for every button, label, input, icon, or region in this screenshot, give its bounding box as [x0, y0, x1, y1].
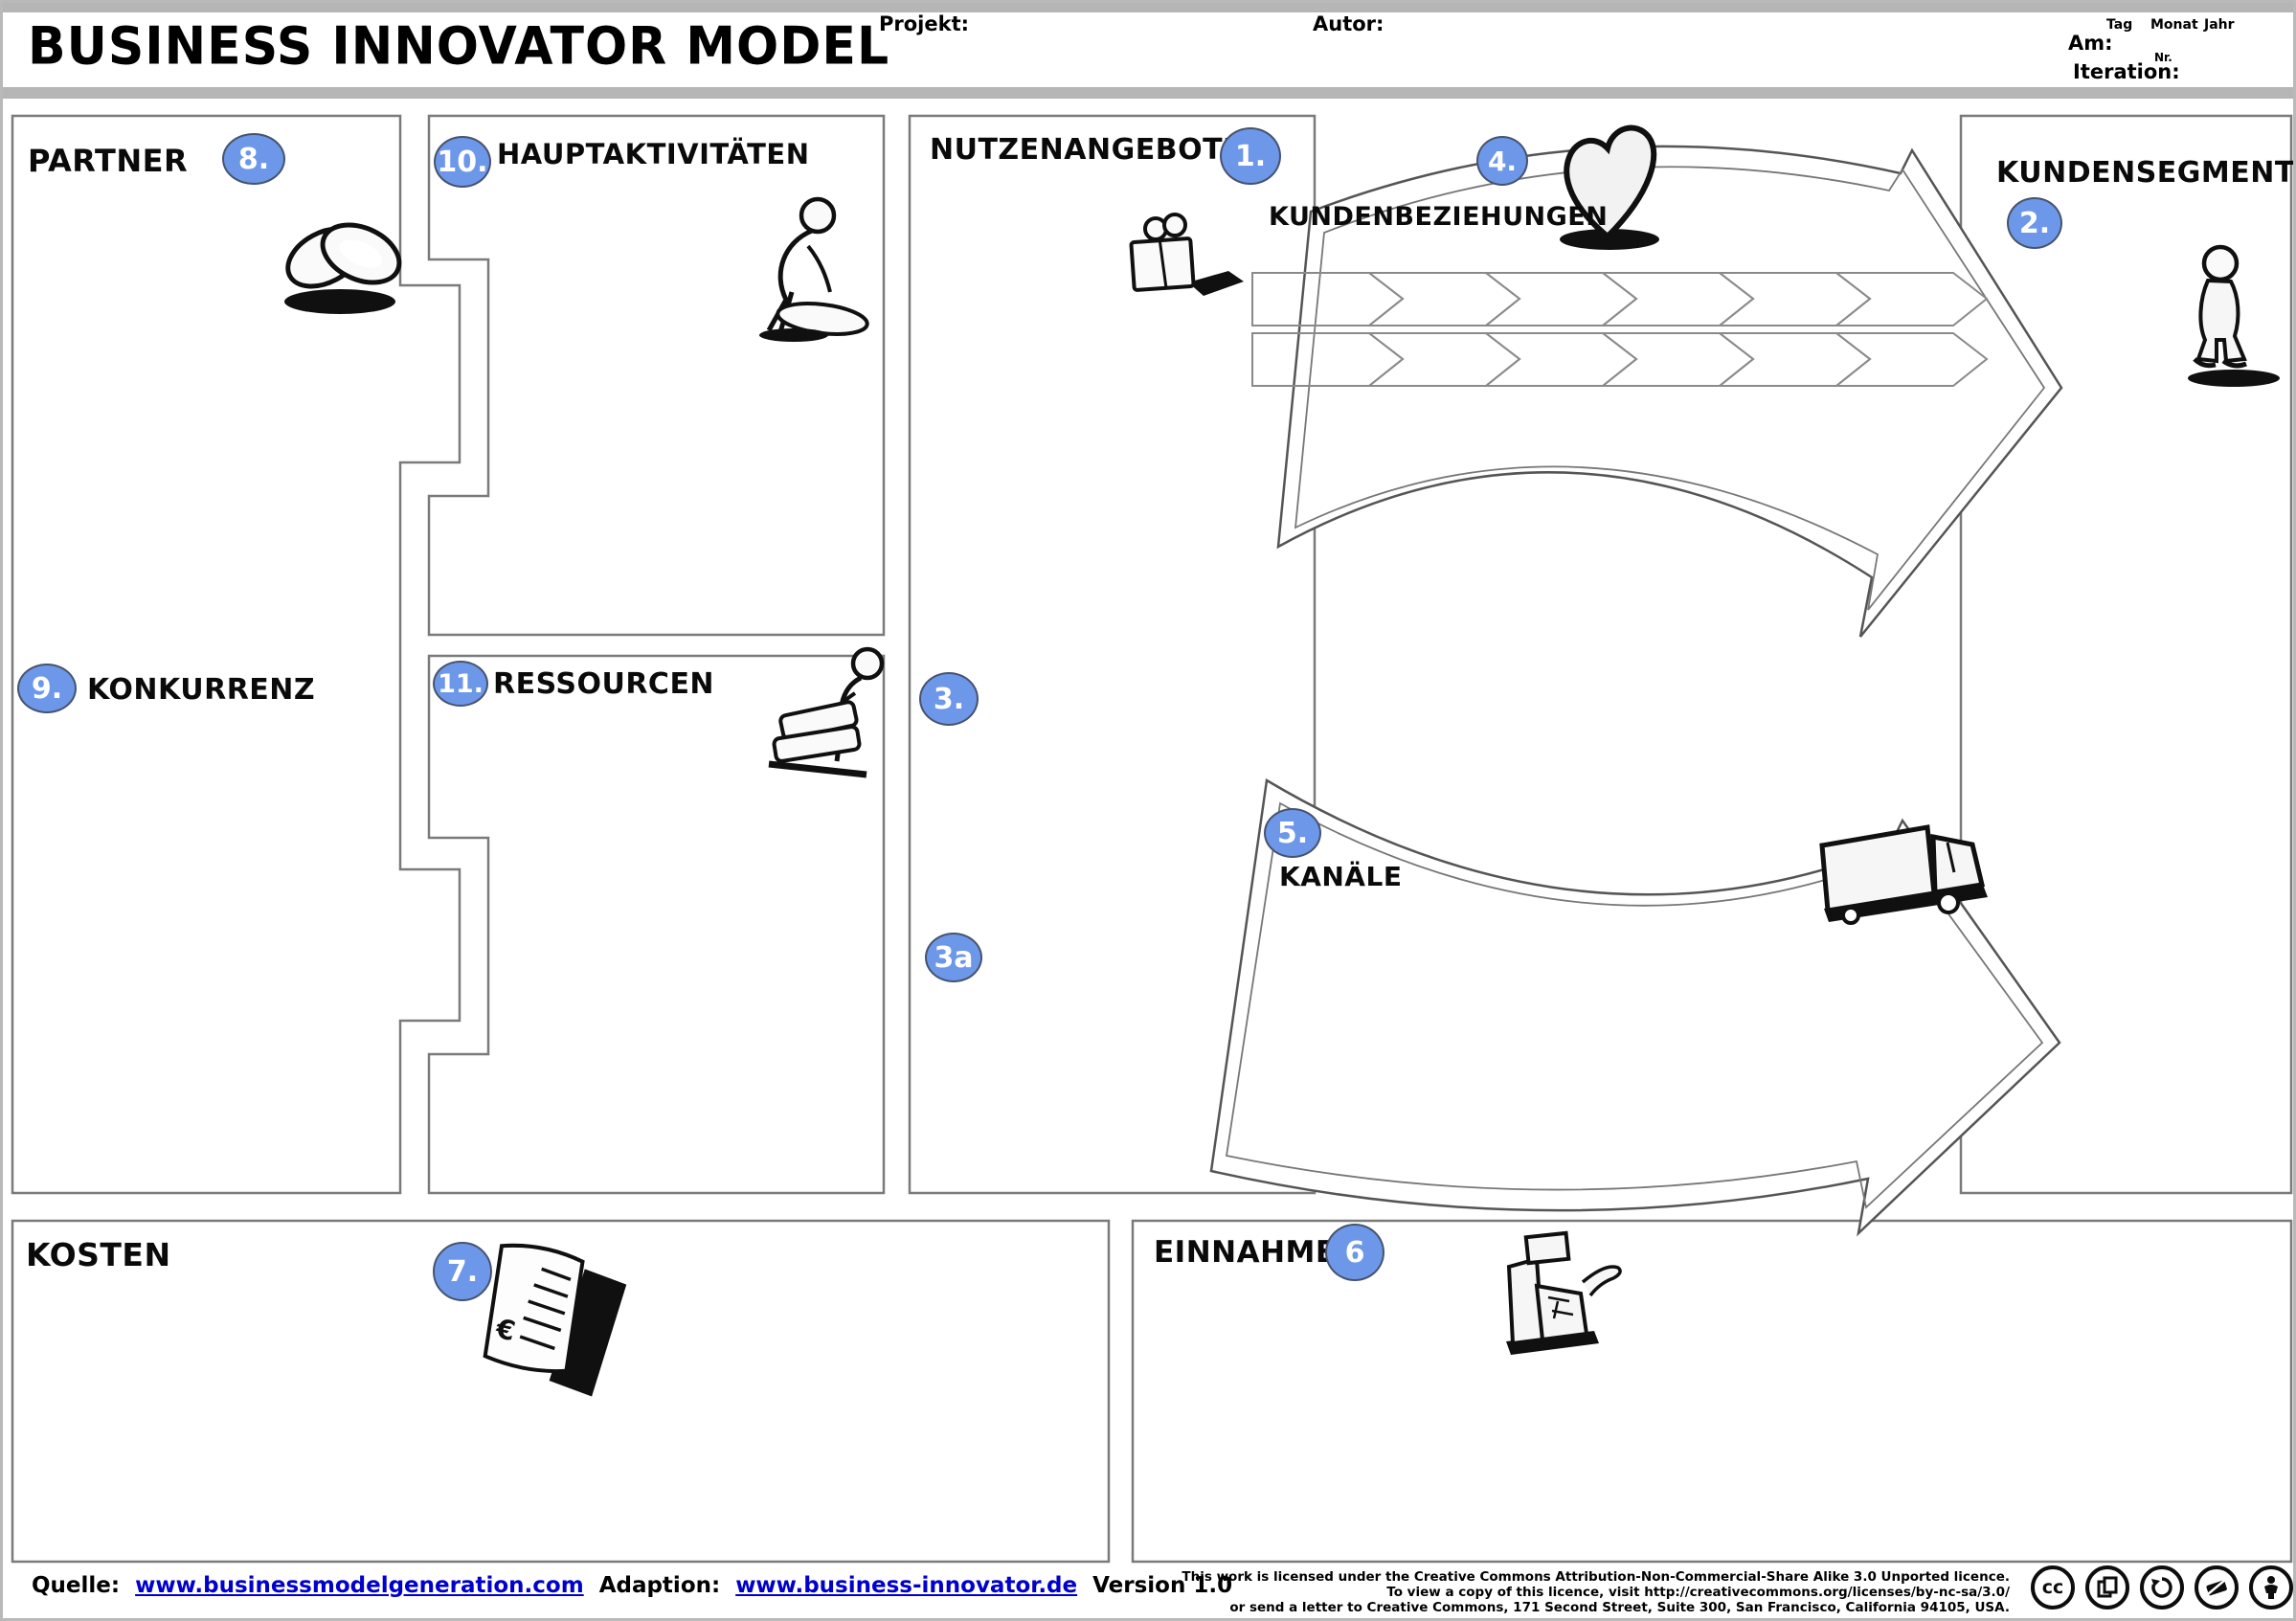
hauptaktivitaeten-label: HAUPTAKTIVITÄTEN [497, 138, 809, 170]
konkurrenz-badge: 9. [17, 664, 77, 713]
quelle-link[interactable]: www.businessmodelgeneration.com [135, 1573, 584, 1598]
non-commercial-icon [2195, 1565, 2239, 1610]
kanaele-badge: 5. [1264, 808, 1321, 858]
einnahmen-piece-shape [1133, 1221, 2291, 1562]
license-icon-row: cc [2031, 1565, 2293, 1610]
badge-3a: 3a [925, 933, 982, 982]
canvas-shapes: € [3, 3, 2296, 1621]
share-alike-icon [2140, 1565, 2184, 1610]
ressourcen-label: RESSOURCEN [493, 667, 714, 701]
cc-icon: cc [2031, 1565, 2075, 1610]
ressourcen-badge: 11. [433, 661, 488, 707]
hauptaktivitaeten-badge: 10. [434, 136, 491, 188]
kundenbeziehungen-badge: 4. [1476, 136, 1528, 186]
attribution-icon [2249, 1565, 2293, 1610]
license-line-1: This work is licensed under the Creative… [957, 1569, 2010, 1585]
kundenbeziehungen-label: KUNDENBEZIEHUNGEN [1269, 202, 1608, 232]
kundensegmente-badge: 2. [2007, 197, 2062, 249]
nutzenangebote-badge: 1. [1220, 127, 1281, 185]
partner-label: PARTNER [28, 143, 188, 179]
license-line-3: or send a letter to Creative Commons, 17… [957, 1600, 2010, 1615]
license-line-2: To view a copy of this licence, visit ht… [957, 1585, 2010, 1600]
kosten-badge: 7. [433, 1242, 492, 1301]
business-innovator-canvas: BUSINESS INNOVATOR MODEL Projekt: Autor:… [0, 0, 2296, 1621]
copy-icon [2085, 1565, 2129, 1610]
quelle-label: Quelle: [32, 1573, 120, 1598]
kanaele-label: KANÄLE [1279, 861, 1402, 892]
license-text: This work is licensed under the Creative… [957, 1569, 2010, 1615]
konkurrenz-label: KONKURRENZ [87, 673, 315, 707]
hauptaktivitaeten-piece-shape [429, 116, 884, 635]
kundensegmente-label: KUNDENSEGMENTE [1996, 156, 2296, 190]
adaption-label: Adaption: [599, 1573, 721, 1598]
partner-badge: 8. [222, 133, 285, 185]
einnahmen-badge: 6 [1325, 1224, 1384, 1281]
badge-3: 3. [919, 672, 979, 726]
nutzenangebote-label: NUTZENANGEBOTE [930, 133, 1243, 167]
kosten-label: KOSTEN [26, 1236, 171, 1273]
